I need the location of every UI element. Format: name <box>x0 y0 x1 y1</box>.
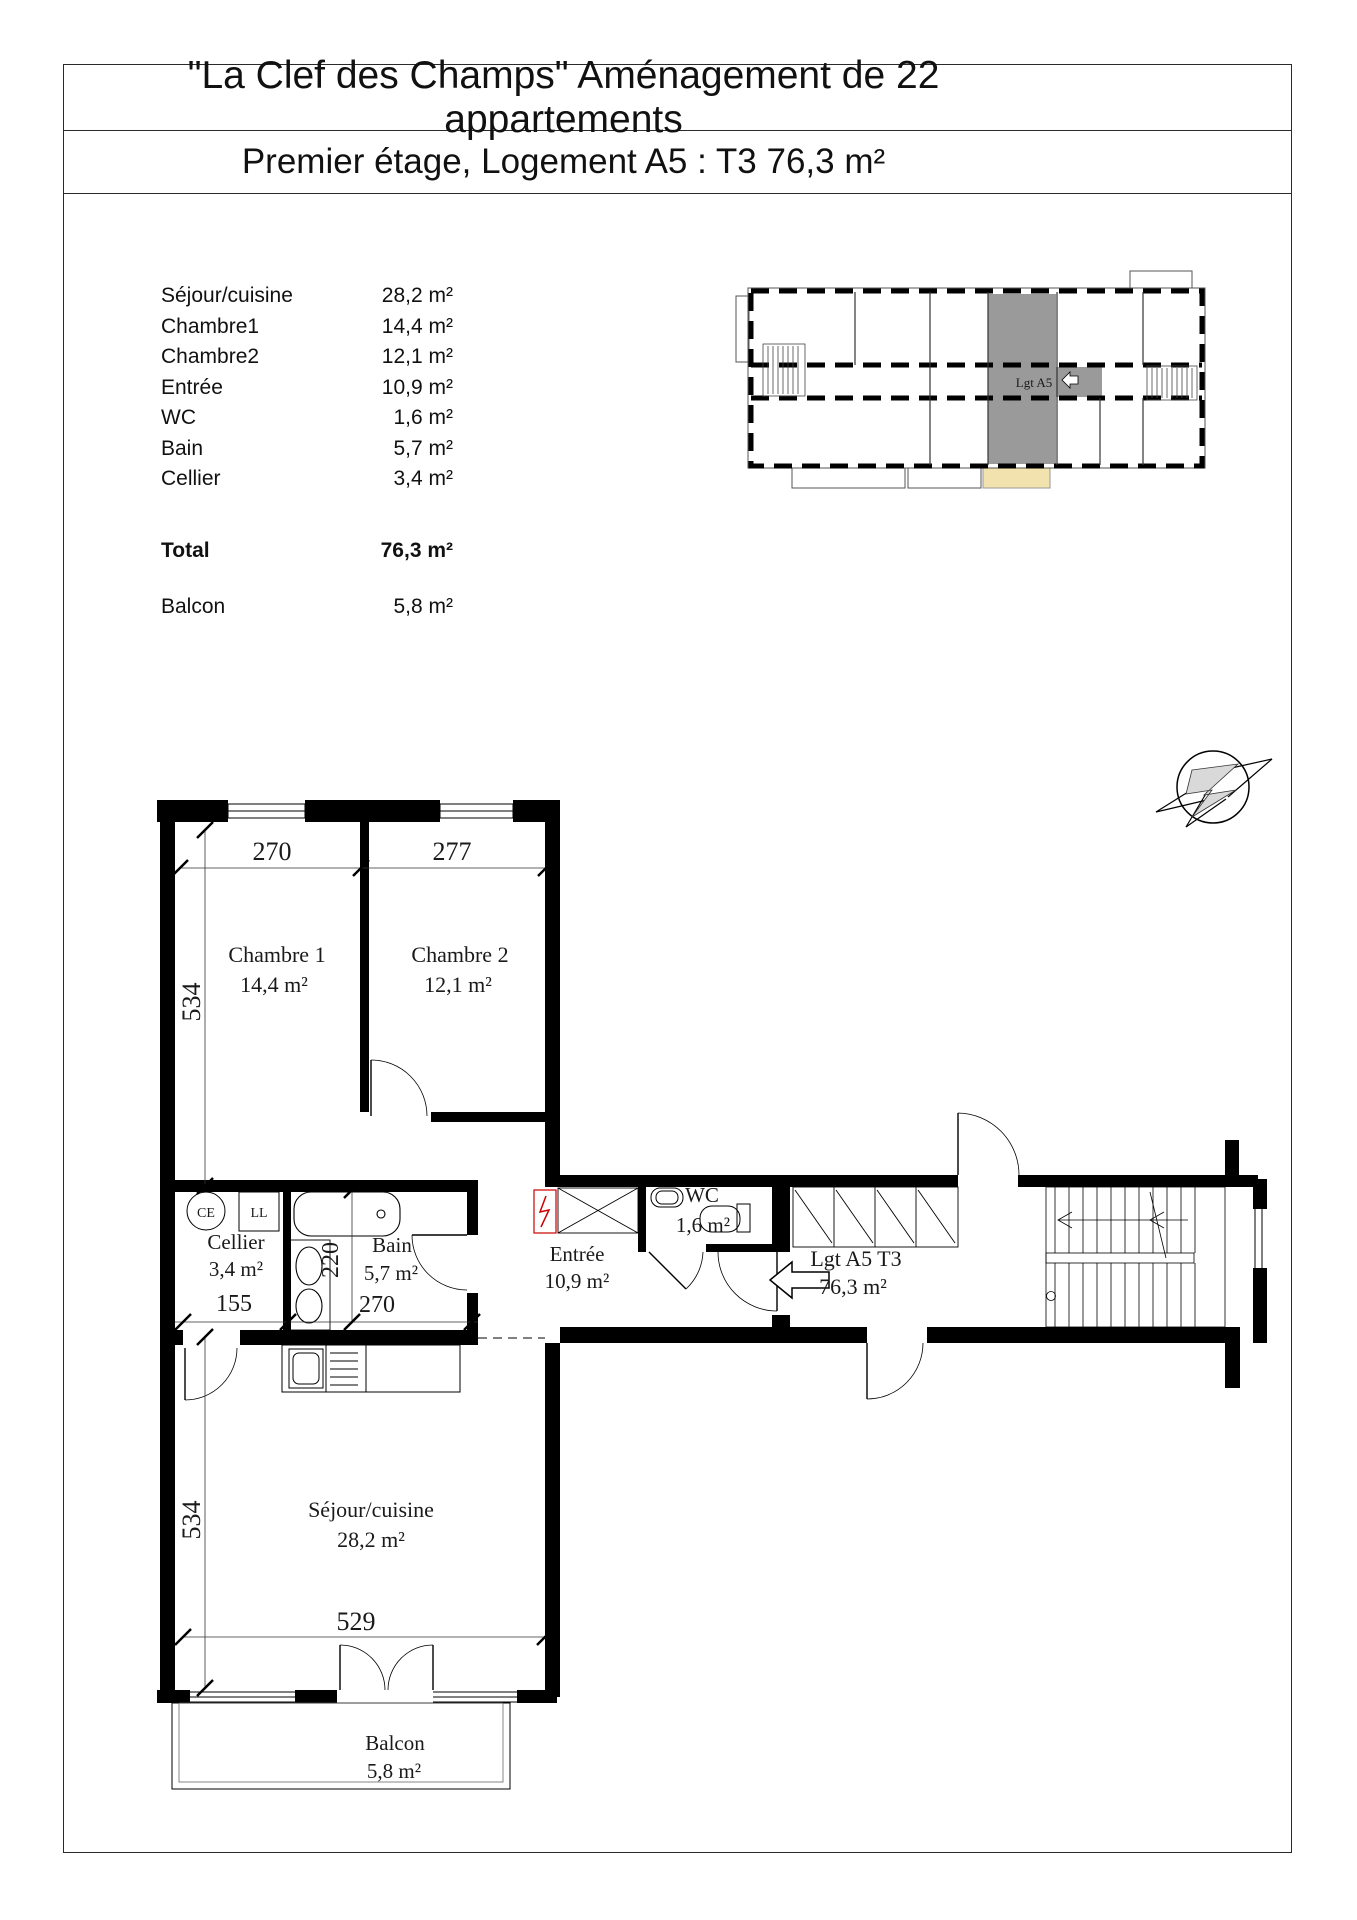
room-area-wc: 1,6 m² <box>676 1213 730 1237</box>
stove <box>330 1353 358 1385</box>
water-heater-label: CE <box>197 1206 215 1221</box>
room-name-bain: Bain <box>372 1233 412 1257</box>
dim-bedrooms-depth: 534 <box>177 983 206 1022</box>
door <box>185 1060 1019 1690</box>
key-plan-balcony-highlight <box>983 468 1050 488</box>
room-area-chambre2: 12,1 m² <box>424 972 492 997</box>
room-area-sejour: 28,2 m² <box>337 1527 405 1552</box>
room-name-sejour: Séjour/cuisine <box>308 1497 434 1522</box>
dim-sejour-width: 529 <box>337 1607 376 1636</box>
bathtub <box>294 1192 400 1236</box>
room-name-balcon: Balcon <box>365 1731 425 1755</box>
room-area-chambre1: 14,4 m² <box>240 972 308 997</box>
key-plan-map: Lgt A5 <box>736 271 1205 488</box>
entree-fixtures <box>534 1188 638 1233</box>
room-name-chambre2: Chambre 2 <box>411 942 508 967</box>
room-area-bain: 5,7 m² <box>364 1261 418 1285</box>
floor-plan-page: { "title": { "line1": "\"La Clef des Cha… <box>0 0 1357 1920</box>
apartment-label: Lgt A5 T3 <box>810 1246 901 1271</box>
sink <box>296 1289 322 1323</box>
apartment-area: 76,3 m² <box>819 1274 887 1299</box>
toilet-tank <box>737 1204 750 1232</box>
dim-bain-depth: 220 <box>318 1242 344 1278</box>
room-name-cellier: Cellier <box>207 1230 264 1254</box>
dim-bain-width: 270 <box>359 1292 395 1318</box>
dim-chambre1-width: 270 <box>253 837 292 866</box>
floor-plan-drawing: Lgt A5 <box>0 0 1357 1920</box>
room-area-balcon: 5,8 m² <box>367 1759 421 1783</box>
room-area-cellier: 3,4 m² <box>209 1257 263 1281</box>
balcony-outline <box>172 1703 510 1789</box>
north-arrow-icon <box>1156 751 1272 827</box>
room-name-chambre1: Chambre 1 <box>228 942 325 967</box>
key-plan-label: Lgt A5 <box>1016 375 1052 390</box>
dim-sejour-depth: 534 <box>177 1501 206 1540</box>
staircase <box>1046 1187 1225 1327</box>
room-name-entree: Entrée <box>550 1242 605 1266</box>
room-area-entree: 10,9 m² <box>545 1269 610 1293</box>
room-name-wc: WC <box>685 1183 719 1207</box>
washing-machine-label: LL <box>250 1206 267 1221</box>
dim-chambre2-width: 277 <box>433 837 472 866</box>
dim-cellier-width: 155 <box>216 1291 252 1317</box>
closets <box>793 1187 958 1247</box>
kitchen-counter <box>282 1345 460 1392</box>
key-plan-stairs <box>763 344 1197 400</box>
key-plan-walls <box>751 291 1202 466</box>
wardrobe <box>558 1188 638 1233</box>
